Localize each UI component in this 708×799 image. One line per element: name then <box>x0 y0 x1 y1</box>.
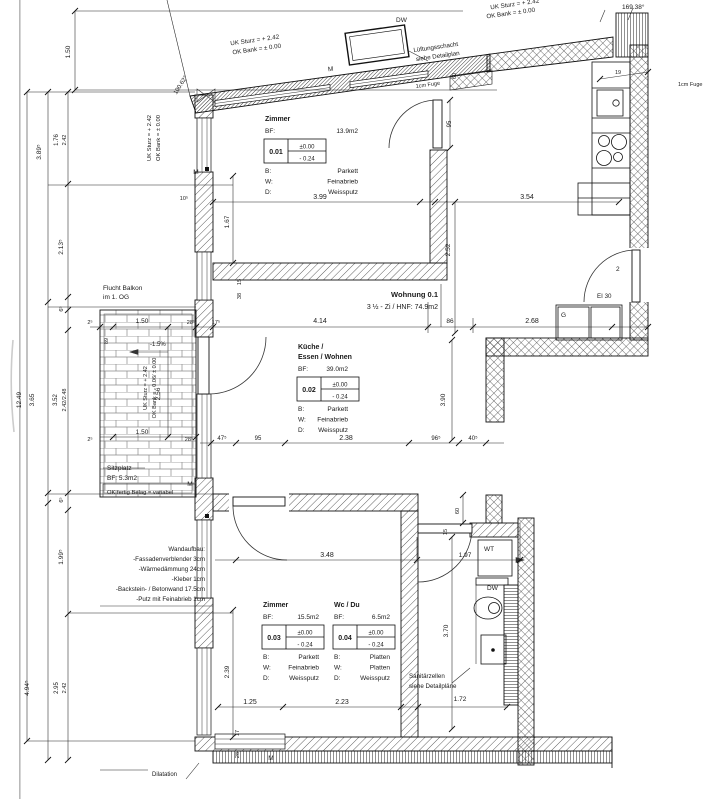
exterior-walls <box>190 13 649 768</box>
room-number: 0.03 <box>267 635 281 642</box>
label-60: 19 <box>615 70 621 76</box>
finish-value: Feinabrieb <box>327 179 358 186</box>
label-93: 17 <box>235 730 241 736</box>
bf-label: BF: <box>263 614 273 621</box>
label-50: 6⁵ <box>58 497 65 502</box>
joint-note: 1cm Fuge <box>415 81 440 90</box>
label-53: 2.42 <box>62 683 68 694</box>
bath-top-wall <box>470 523 518 537</box>
label-73: 2.68 <box>525 318 539 325</box>
floor-plan-canvas: ZimmerBF:13.9m20.01±0.00- 0.24B:ParkettW… <box>0 0 708 799</box>
floor-plan-page: ZimmerBF:13.9m20.01±0.00- 0.24B:ParkettW… <box>0 0 708 799</box>
label-76: 1.50 <box>136 429 149 436</box>
window-marker: M <box>187 481 192 488</box>
label-3: im 1. OG <box>103 294 129 301</box>
finish-value: Weissputz <box>360 675 390 682</box>
label-71: 4.14 <box>313 318 327 325</box>
sitzplatz-level-note: OK fertig Belag = variabel <box>107 490 173 496</box>
room-name: Essen / Wohnen <box>298 354 352 361</box>
bf-label: BF: <box>298 366 308 373</box>
label-52: 2.95 <box>54 682 60 694</box>
label-64: 38 <box>237 293 243 299</box>
label-14: siehe Detailpläne <box>409 683 457 690</box>
top-wall-masonry <box>190 54 490 113</box>
label-42: 3.65 <box>29 393 36 406</box>
label-92: 1.72 <box>454 696 467 703</box>
room-block-0.01: ZimmerBF:13.9m20.01±0.00- 0.24B:ParkettW… <box>264 116 358 196</box>
label-85: 3.48 <box>320 552 334 559</box>
level-top: ±0.00 <box>298 631 314 637</box>
label-45: 3.89⁵ <box>36 144 43 160</box>
finish-value: Weissputz <box>289 675 319 682</box>
finish-value: Platten <box>370 665 391 672</box>
toilet <box>474 597 502 619</box>
label-59: 60 <box>452 73 458 79</box>
level-top: ±0.00 <box>300 145 316 151</box>
finish-key: B: <box>298 406 304 413</box>
finish-value: Parkett <box>337 168 358 175</box>
room-number: 0.02 <box>302 387 316 394</box>
duct-label: DW <box>396 17 408 24</box>
label-66: 17⁵ <box>212 319 220 326</box>
finish-key: W: <box>265 179 273 186</box>
wall-buildup-title: Wandaufbau: <box>168 546 205 553</box>
label-88: 2.39 <box>224 665 231 678</box>
party-wall-vertical <box>486 338 504 422</box>
label-72: 86 <box>446 318 454 325</box>
room-area: 6.5m2 <box>372 614 390 621</box>
room1-door-swing <box>389 100 437 148</box>
label-81: 96⁵ <box>431 435 441 442</box>
washbasin-label: WT <box>484 546 494 553</box>
unit-subtitle: 3 ½ - Zi / HNF: 74.9m2 <box>367 303 438 311</box>
room-name: Küche / <box>298 344 323 351</box>
finish-value: Platten <box>370 654 391 661</box>
angle-dim: 100.62° <box>173 75 189 96</box>
label-84: 60 <box>455 508 461 514</box>
room-name: Zimmer <box>265 116 291 123</box>
label-58: 95 <box>447 120 453 127</box>
room-block-0.02: Küche /Essen / WohnenBF:39.0m20.02±0.00-… <box>297 344 359 434</box>
label-8: -Fassadenverblender 3cm <box>133 556 205 563</box>
label-54: 4.94⁵ <box>24 680 31 696</box>
room1-door-leaf <box>433 100 442 148</box>
label-43: 3.52 <box>53 394 59 406</box>
level-top: ±0.00 <box>369 631 385 637</box>
finish-value: Feinabrieb <box>317 417 348 424</box>
label-9: -Wärmedämmung 24cm <box>139 566 205 573</box>
fire-rating-label: EI 30 <box>597 293 612 300</box>
label-77: 2.52 <box>445 243 452 256</box>
room-number: 0.04 <box>338 635 352 642</box>
window-marker: M <box>328 66 334 74</box>
sanitary-note: Sanitärzellen <box>409 673 445 680</box>
lintel-level-note: UK Sturz = + 2.42 <box>147 115 153 161</box>
unit-title: Wohnung 0.1 <box>391 290 438 299</box>
label-70: 1.50 <box>136 318 149 325</box>
door-number: 2 <box>616 266 620 273</box>
label-31: OK Bank = ± 0.00 <box>156 115 162 161</box>
dimension-line <box>186 763 199 779</box>
kitchen-counter <box>592 62 630 215</box>
top-wall-new-crosshatch <box>487 37 613 72</box>
dim-total-height: 12.49 <box>16 391 23 408</box>
level-top: ±0.00 <box>333 383 349 389</box>
label-46: 1.76 <box>54 134 60 146</box>
bf-label: BF: <box>265 128 275 135</box>
label-56: 3.99 <box>313 194 327 201</box>
finish-key: B: <box>265 168 271 175</box>
sitzplatz-label: Sitzplatz <box>107 465 132 472</box>
room-area: 39.0m2 <box>326 366 348 373</box>
joint-note: 1cm Fuge <box>678 82 702 88</box>
kitchen-cabinet <box>578 183 630 215</box>
label-51: 1.99⁵ <box>58 549 65 565</box>
bath-corner-block <box>486 495 502 523</box>
label-44: 2.42/2.48 <box>62 389 68 412</box>
label-65: 28⁵ <box>187 319 195 326</box>
finish-key: B: <box>263 654 269 661</box>
label-11: -Backstein- / Betonwand 17.5cm <box>116 586 205 593</box>
level-bottom: - 0.24 <box>297 643 313 649</box>
label-75: 2.56 <box>155 387 162 400</box>
room-number: 0.01 <box>269 149 283 156</box>
sitzplatz-area: BF: 5.3m2 <box>107 475 137 482</box>
wardrobe-label: G <box>561 312 566 319</box>
label-78: 47⁵ <box>217 435 227 442</box>
label-89: 3.70 <box>443 624 450 637</box>
balcony-door-swing <box>209 337 266 394</box>
finish-key: D: <box>334 675 341 682</box>
shower-label: DW <box>487 585 499 592</box>
window-marker: M <box>268 755 273 762</box>
angle-dim: 169.38° <box>622 3 645 11</box>
slope-label: -1.5% <box>150 342 166 348</box>
cooktop <box>597 135 627 166</box>
room-area: 13.9m2 <box>336 128 358 135</box>
finish-value: Feinabrieb <box>288 665 319 672</box>
bath-right-wall <box>518 518 534 765</box>
label-94: 28 <box>235 752 241 758</box>
balcony-level-note: UK Sturz = + 2.42 <box>143 366 149 410</box>
room-block-0.03: ZimmerBF:15.5m20.03±0.00- 0.24B:ParkettW… <box>262 602 324 682</box>
dilatation-label: Dilatation <box>152 772 177 778</box>
vent-duct <box>345 25 409 65</box>
label-86: 1.97 <box>459 552 472 559</box>
room-block-0.04: Wc / DuBF:6.5m20.04±0.00- 0.24B:PlattenW… <box>333 602 395 682</box>
room-name: Wc / Du <box>334 602 360 609</box>
level-bottom: - 0.24 <box>299 157 315 163</box>
level-bottom: - 0.24 <box>368 643 384 649</box>
label-12: -Putz mit Feinabrieb 1cm <box>136 596 205 603</box>
room-info-blocks: ZimmerBF:13.9m20.01±0.00- 0.24B:ParkettW… <box>262 116 395 682</box>
bath-shelf <box>476 578 508 585</box>
label-62: 1.67 <box>224 215 231 228</box>
window-marker: M <box>193 169 198 176</box>
label-74: 89 <box>104 338 110 344</box>
label-68: 2⁵ <box>87 436 92 443</box>
finish-key: D: <box>263 675 270 682</box>
wall-room1-bottom <box>213 263 447 280</box>
bf-label: BF: <box>334 614 344 621</box>
entry-door-leaf <box>632 250 640 302</box>
label-61: 10⁵ <box>180 195 188 202</box>
room-name: Zimmer <box>263 602 289 609</box>
label-63: 15 <box>237 279 243 285</box>
level-bottom: - 0.24 <box>332 395 348 401</box>
finish-value: Parkett <box>327 406 348 413</box>
dimension-tick <box>597 76 603 82</box>
room3-door-swing <box>233 506 287 560</box>
label-49: 6⁵ <box>58 306 65 311</box>
finish-key: W: <box>334 665 342 672</box>
party-wall-horizontal <box>486 338 648 356</box>
room3-door-leaf <box>233 497 285 506</box>
label-79: 95 <box>255 436 262 442</box>
label-87: 15 <box>443 529 449 535</box>
balcony-door-leaf <box>198 337 209 394</box>
label-69: 28⁵ <box>185 436 193 443</box>
finish-value: Parkett <box>298 654 319 661</box>
wall-room3-right <box>401 511 418 737</box>
finish-value: Weissputz <box>318 427 348 434</box>
label-47: 2.42 <box>62 135 68 146</box>
escape-balcony-note: Flucht Balkon <box>103 285 143 292</box>
label-57: 3.54 <box>520 194 534 201</box>
finish-key: D: <box>265 189 272 196</box>
label-80: 2.38 <box>339 435 353 442</box>
label-48: 2.13⁵ <box>58 239 65 255</box>
label-10: -Kleber 1cm <box>172 576 205 583</box>
finish-key: W: <box>263 665 271 672</box>
label-82: 40⁵ <box>468 435 478 442</box>
bottom-window <box>215 734 285 749</box>
finish-key: D: <box>298 427 305 434</box>
label-55: 1.50 <box>65 45 72 58</box>
room-area: 15.5m2 <box>297 614 319 621</box>
finish-key: B: <box>334 654 340 661</box>
label-67: 2⁵ <box>87 319 92 326</box>
label-83: 3.90 <box>440 393 447 406</box>
finish-value: Weissputz <box>328 189 358 196</box>
finish-key: W: <box>298 417 306 424</box>
label-91: 2.23 <box>335 699 349 706</box>
label-90: 1.25 <box>243 699 257 706</box>
